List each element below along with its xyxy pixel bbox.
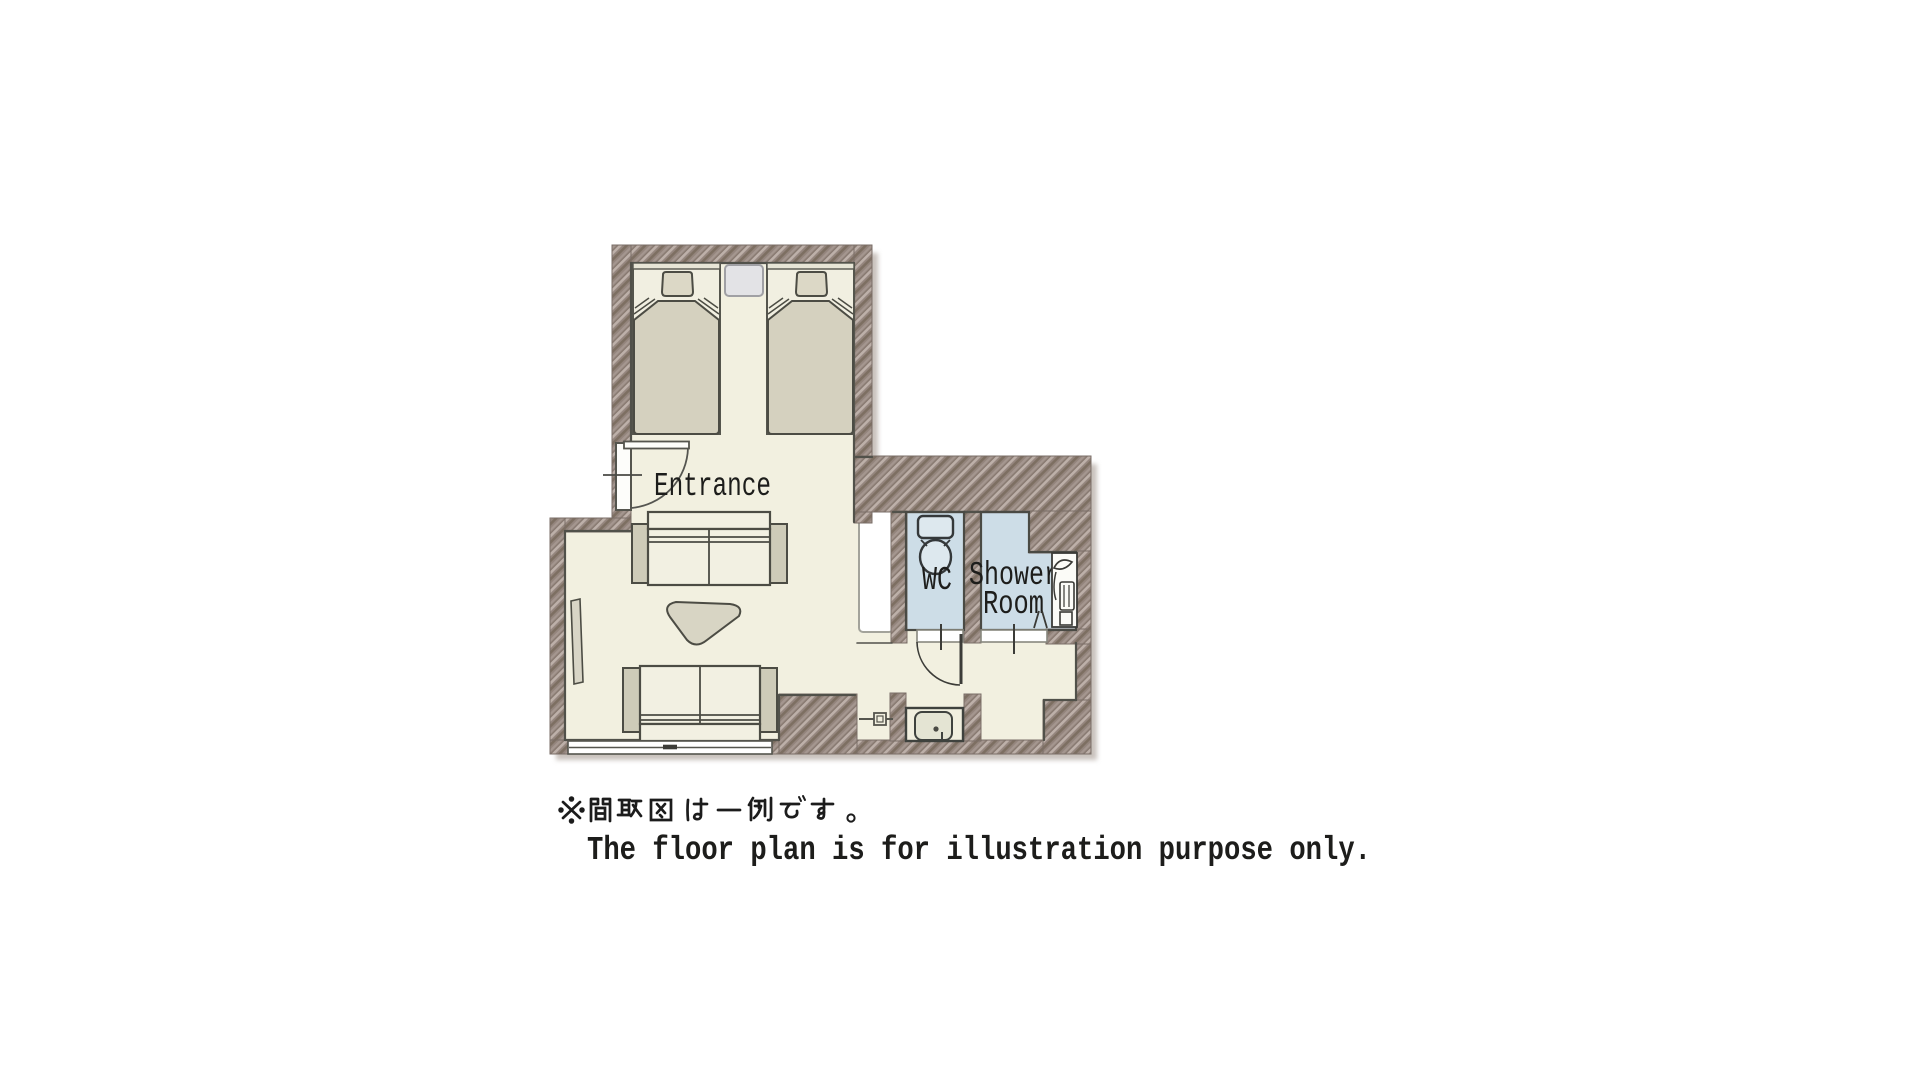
svg-text:Room: Room <box>983 586 1044 623</box>
svg-text:WC: WC <box>922 562 952 599</box>
svg-text:Entrance: Entrance <box>654 468 771 505</box>
svg-text:The floor plan is for illustra: The floor plan is for illustration purpo… <box>587 832 1371 869</box>
